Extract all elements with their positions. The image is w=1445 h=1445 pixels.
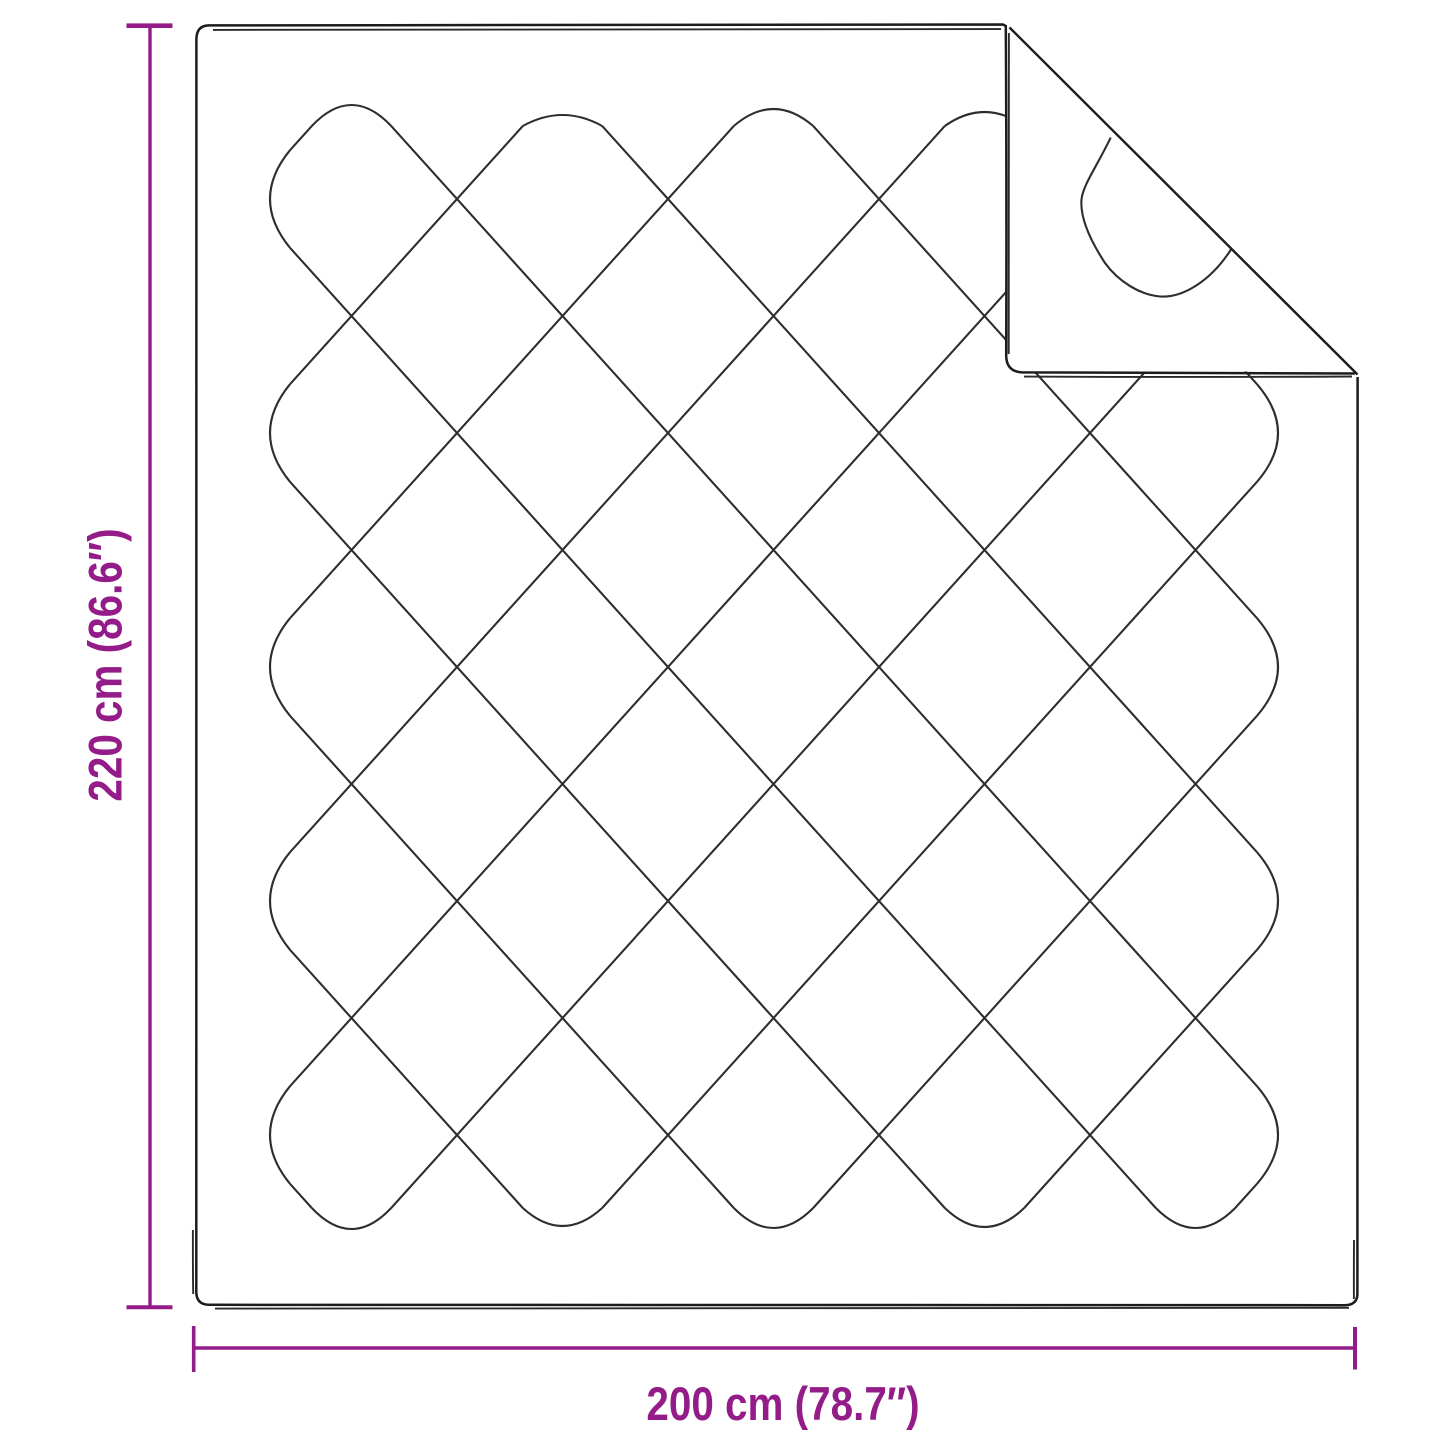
svg-text:220 cm (86.6″): 220 cm (86.6″): [80, 528, 133, 801]
svg-text:200 cm (78.7″): 200 cm (78.7″): [646, 1378, 919, 1431]
